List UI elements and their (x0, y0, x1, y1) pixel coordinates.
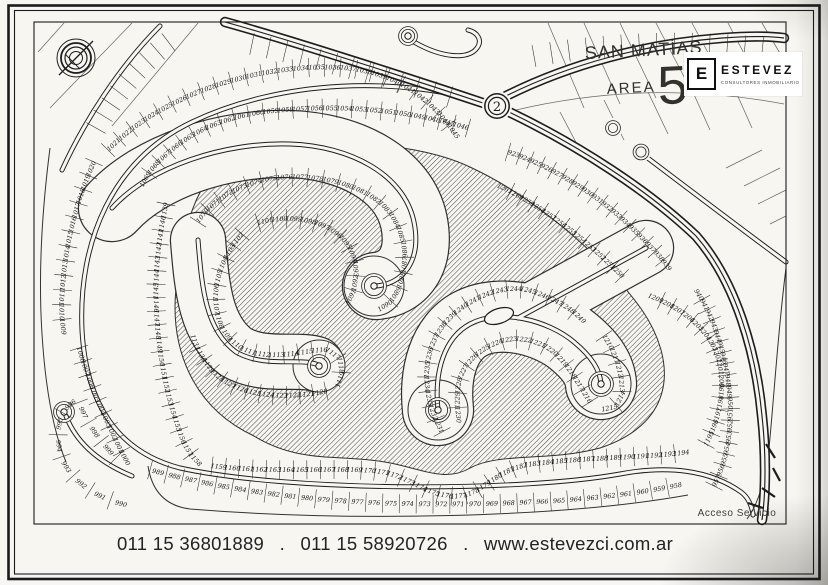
lot-boundary-tick (567, 490, 568, 509)
lot-number: 1158 (187, 451, 204, 468)
lot-number: 965 (553, 496, 566, 505)
lot-boundary-tick (500, 494, 501, 513)
lot-number: 991 (93, 490, 107, 503)
lot-number: 1052 (365, 106, 382, 115)
lot-boundary-tick (666, 478, 670, 497)
phone-number-1: 011 15 36801889 (117, 533, 264, 554)
lot-boundary-tick (616, 486, 618, 505)
lot-boundary-tick (214, 476, 218, 495)
lot-boundary-tick (86, 123, 105, 134)
lot-number: 996 (63, 398, 77, 412)
lot-number: 985 (217, 482, 230, 492)
lot-number: 975 (385, 499, 397, 507)
service-access-label: Acceso Servicio (698, 508, 777, 519)
lot-boundary-tick (649, 481, 652, 500)
lot-number: 984 (234, 484, 247, 494)
lot-number: 983 (250, 487, 263, 497)
lot-number: 1033 (277, 65, 294, 75)
lot-number: 969 (486, 500, 498, 508)
lot-boundary-tick (281, 486, 283, 505)
lot-boundary-tick (517, 493, 518, 512)
lot-number: 989 (151, 467, 165, 478)
roundabout-2: 2 (482, 91, 512, 121)
lot-boundary-tick (315, 489, 317, 508)
service-mark (773, 468, 780, 481)
culdesac-center (598, 381, 604, 387)
lot-number: 979 (317, 495, 330, 504)
lot-number: 986 (201, 478, 215, 488)
lot-number: 1194 (673, 448, 690, 458)
lot-number: 1054 (336, 104, 353, 113)
culdesac-center (371, 283, 377, 289)
lot-boundary-tick (348, 492, 349, 511)
area-title-word: AREA (606, 78, 656, 98)
lot-number: 997 (77, 405, 90, 420)
lot-number: 1209 (647, 292, 665, 306)
estevez-logo: E ESTEVEZ CONSULTORES INMOBILIARIOS (684, 52, 802, 96)
estevez-logo-tagline: CONSULTORES INMOBILIARIOS (721, 80, 799, 85)
roundabout-label: 2 (493, 100, 501, 115)
lot-number: 981 (284, 492, 297, 501)
estevez-logo-e-icon: E (687, 58, 716, 90)
scanned-plat-page: 1021102210231024102510261027102810291030… (0, 0, 828, 585)
arterial-north-surface (225, 22, 486, 104)
lot-boundary-tick (567, 40, 570, 62)
lot-number: 1012 (58, 274, 67, 291)
lot-number: 966 (536, 497, 549, 506)
lot-number: 950 (726, 397, 735, 410)
lot-boundary-tick (331, 491, 332, 510)
lot-boundary-tick (231, 479, 234, 498)
lot-number: 972 (435, 500, 447, 508)
lot-boundary-tick (550, 42, 553, 64)
lot-number: 962 (603, 491, 616, 500)
lot-boundary-tick (298, 488, 300, 507)
lot-number: 990 (114, 498, 128, 509)
lot-number: 971 (452, 500, 464, 508)
lot-number: 1058 (277, 105, 294, 114)
lot-boundary-tick (533, 493, 534, 512)
lot-boundary-tick (94, 110, 113, 122)
lot-boundary-tick (102, 98, 120, 110)
lot-number: 964 (569, 495, 582, 504)
lot-number: 1053 (351, 105, 368, 114)
lot-boundary-tick (247, 481, 250, 500)
lot-number: 949 (725, 385, 734, 398)
lot-boundary-tick (139, 53, 154, 69)
lot-number: 978 (334, 497, 347, 506)
lot-number: 963 (586, 493, 599, 502)
lot-boundary-tick (110, 86, 128, 99)
lot-number: 974 (402, 500, 414, 508)
lot-number: 1050 (395, 109, 412, 119)
compass-rose-icon (57, 39, 95, 77)
lot-boundary-tick (264, 484, 267, 503)
lot-number: 1032 (261, 67, 278, 78)
lot-boundary-tick (600, 487, 602, 506)
grid-street-line (758, 190, 786, 204)
lot-boundary-tick (53, 454, 71, 460)
lot-boundary-tick (119, 74, 136, 88)
lot-number: 1013 (60, 259, 70, 276)
lot-number: 951 (727, 408, 735, 420)
website-url: www.estevezci.com.ar (484, 533, 673, 554)
lot-number: 998 (88, 425, 101, 440)
lot-number: 973 (418, 500, 430, 508)
lot-boundary-tick (365, 493, 366, 512)
lot-number: 1035 (308, 63, 324, 71)
lot-number: 968 (502, 499, 514, 507)
lot-number: 960 (636, 487, 649, 497)
lot-boundary-tick (633, 483, 636, 502)
lot-number: 1230 (453, 406, 463, 423)
lot-boundary-tick (532, 45, 536, 67)
lot-number: 1213 (617, 376, 626, 393)
lot-number: 995 (54, 417, 64, 431)
lot-number: 982 (267, 490, 280, 500)
lot-number: 999 (101, 443, 115, 457)
lot-number: 1000 (117, 449, 132, 467)
separator-dot: . (463, 533, 468, 554)
lot-number: 980 (301, 494, 314, 503)
street-top-loop (414, 30, 479, 56)
separator-dot: . (280, 533, 285, 554)
culdesac-center (316, 363, 322, 369)
lot-number: 1036 (324, 63, 340, 71)
estevez-logo-name: ESTEVEZ (721, 63, 799, 77)
lot-number: 958 (669, 481, 683, 491)
lot-number: 976 (368, 499, 381, 508)
lot-number: 1034 (292, 64, 309, 73)
lot-number: 967 (519, 498, 532, 507)
lot-number: 961 (619, 489, 632, 499)
contact-footer: 011 15 36801889 . 011 15 58920726 . www.… (0, 533, 790, 555)
grid-street-line (770, 216, 786, 224)
lot-number: 959 (653, 484, 666, 494)
lot-number: 1031 (245, 70, 263, 81)
lot-number: 988 (168, 471, 182, 482)
lot-number: 1014 (62, 245, 73, 262)
lot-boundary-tick (107, 491, 113, 509)
lot-number: 994 (54, 439, 64, 452)
lot-boundary-tick (583, 489, 585, 508)
lot-boundary-tick (150, 43, 164, 60)
lot-boundary-tick (162, 33, 175, 51)
lot-boundary-tick (250, 33, 254, 55)
lot-number: 993 (60, 460, 73, 475)
grid-street-line (726, 150, 762, 168)
lot-number: 1057 (292, 105, 310, 114)
lot-number: 1009 (58, 318, 68, 335)
culdesac-center (405, 33, 411, 39)
lot-number: 1051 (380, 107, 397, 117)
lot-number: 992 (74, 477, 89, 491)
lot-boundary-tick (550, 492, 551, 511)
lot-number: 987 (184, 475, 199, 486)
phone-number-2: 011 15 58920726 (301, 533, 448, 554)
grid-street-line (744, 168, 780, 186)
lot-boundary-tick (382, 494, 383, 513)
lot-number: 1056 (307, 104, 323, 112)
lot-number: 1076 (276, 173, 293, 182)
lot-number: 970 (469, 500, 481, 508)
lot-number: 1055 (321, 104, 337, 112)
lot-boundary-tick (129, 63, 145, 78)
lot-number: 977 (351, 498, 365, 507)
